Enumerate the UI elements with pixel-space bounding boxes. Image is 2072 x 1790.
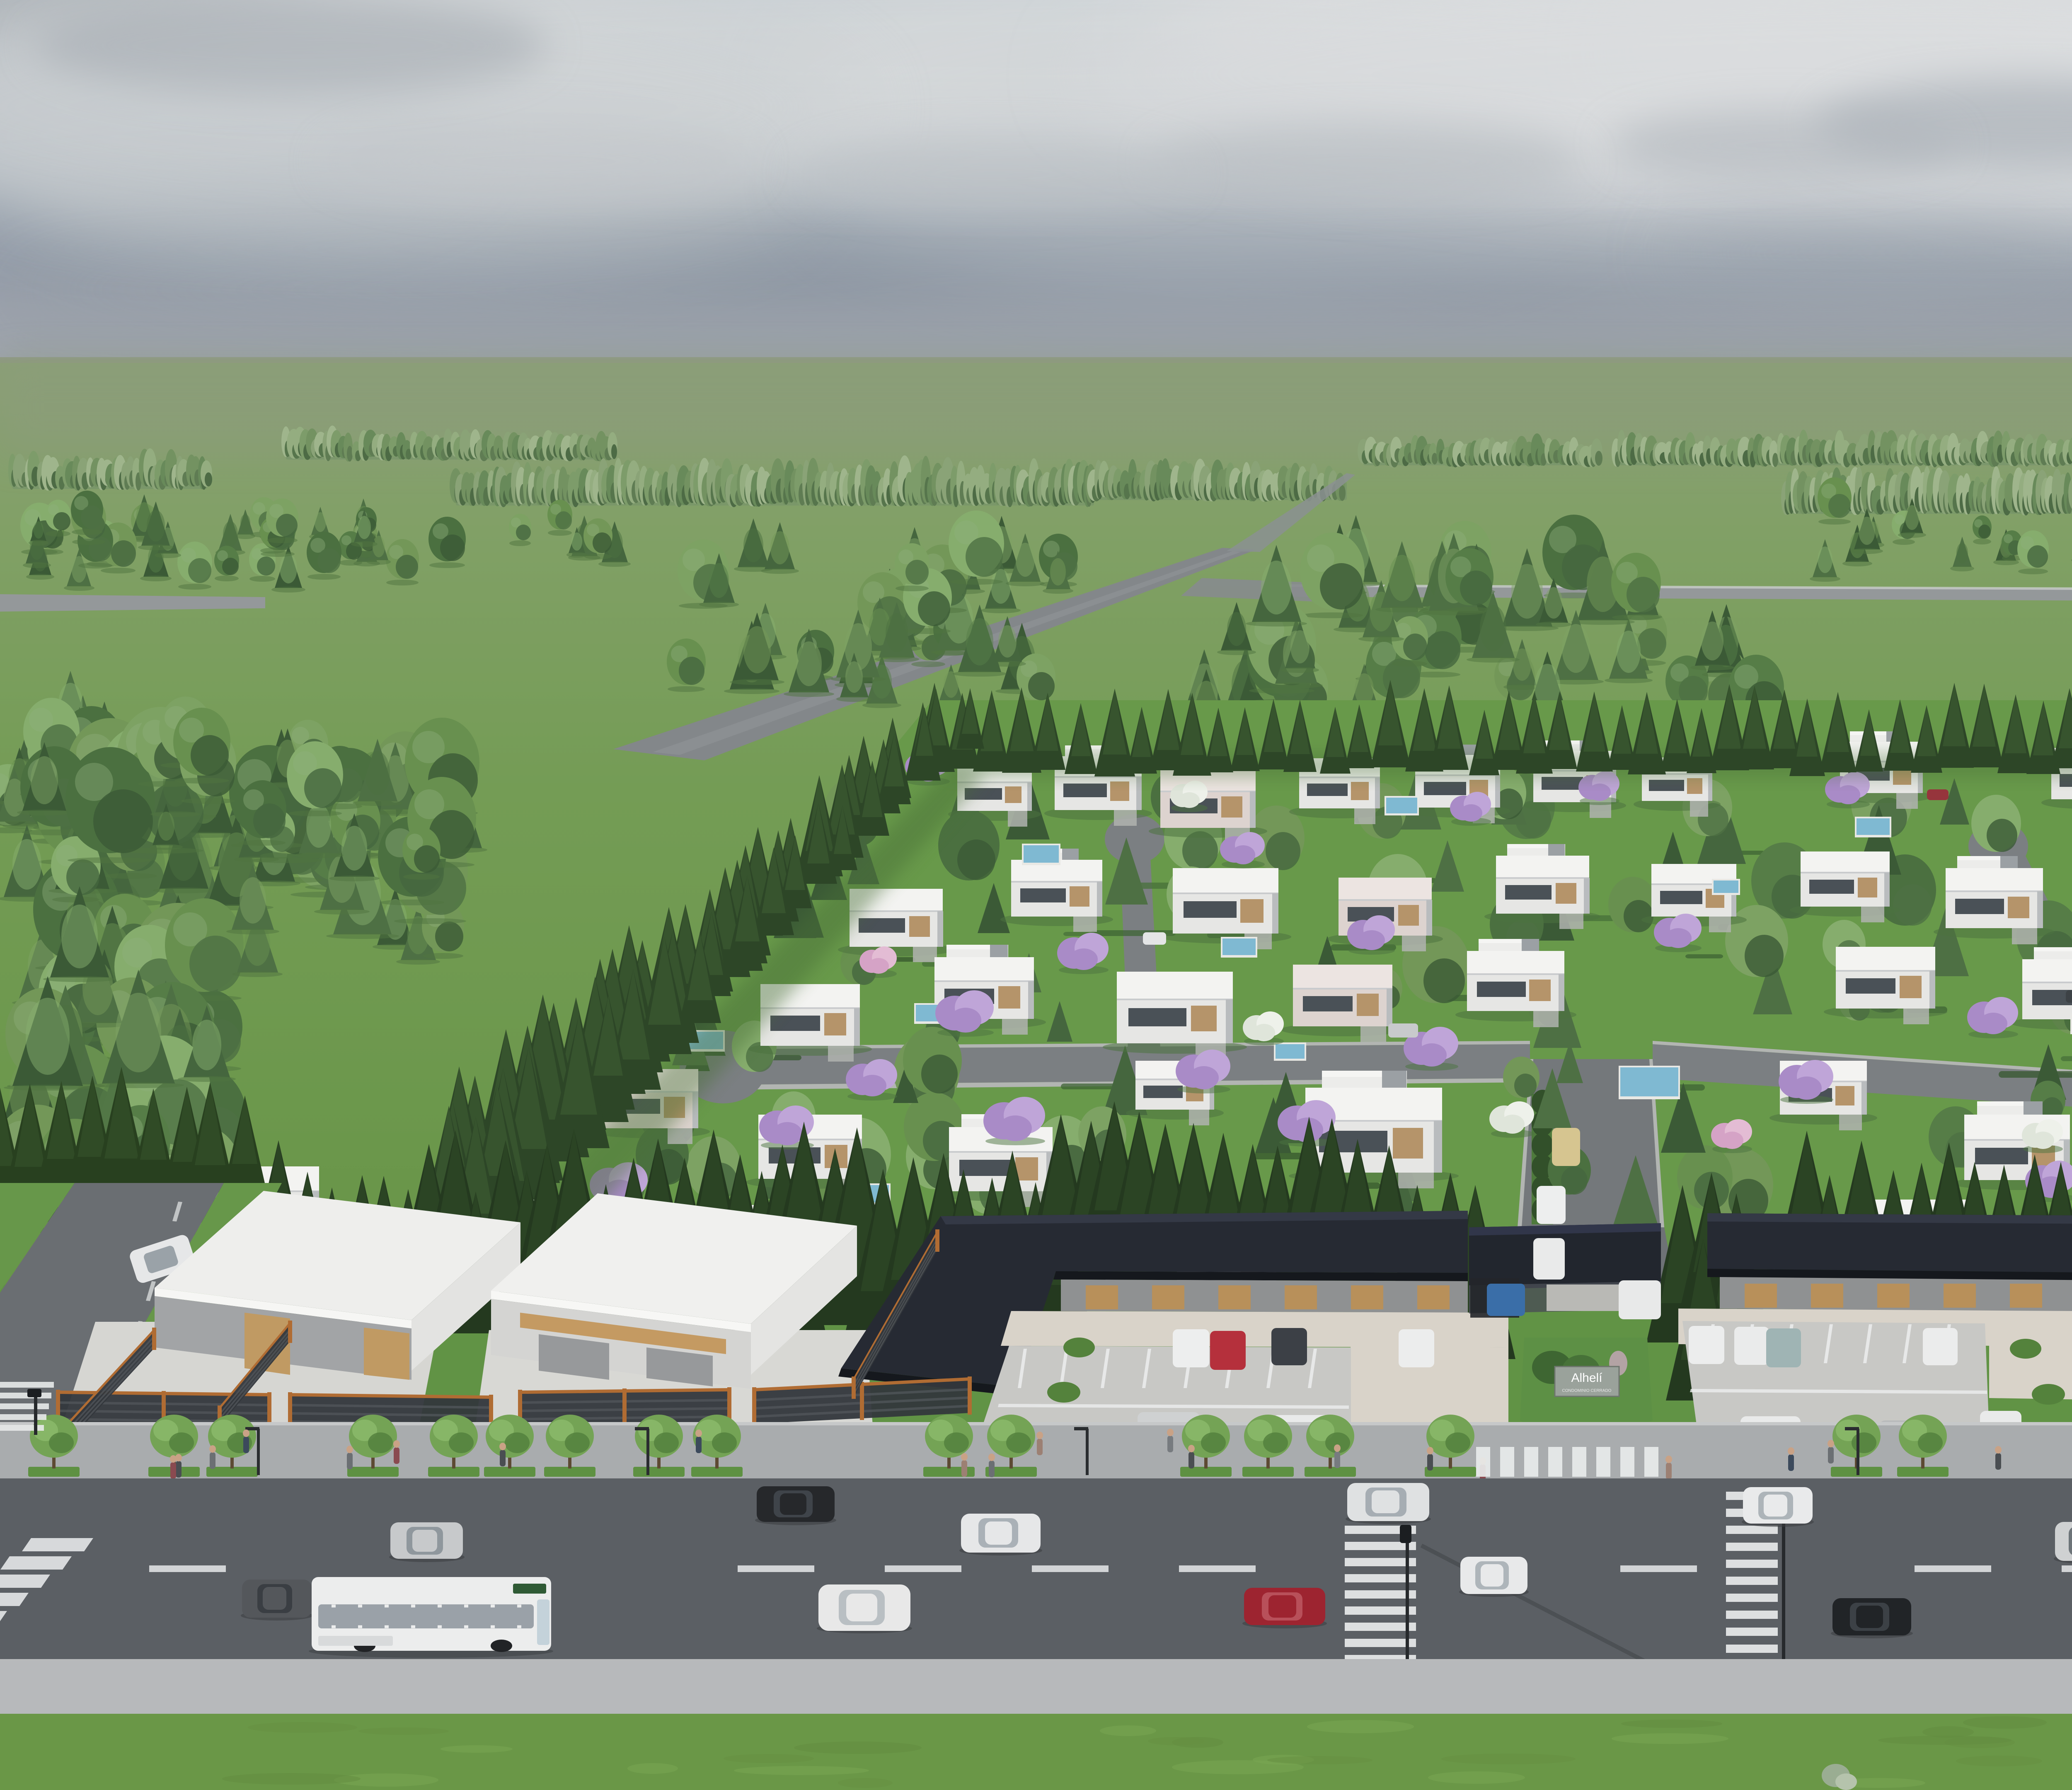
- svg-text:CONDOMINIO CERRADO: CONDOMINIO CERRADO: [1562, 1388, 1612, 1393]
- svg-text:Alhelí: Alhelí: [1571, 1371, 1602, 1385]
